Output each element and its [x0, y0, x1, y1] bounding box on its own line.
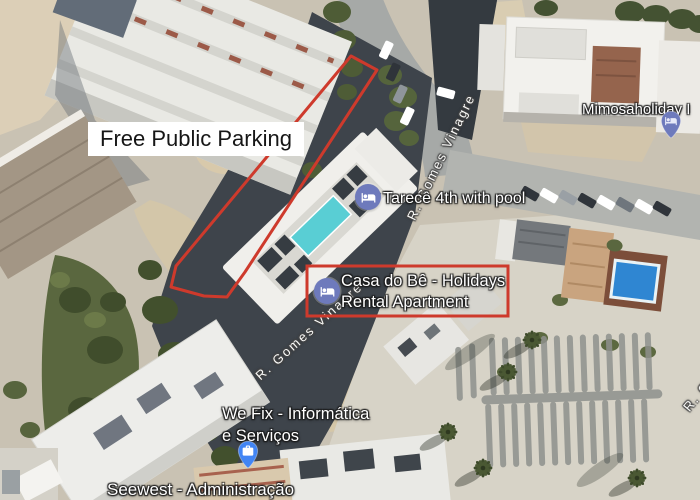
free-parking-annotation: Free Public Parking: [88, 122, 304, 156]
poi-label-tarece[interactable]: Tarecê 4th with pool: [383, 188, 525, 209]
poi-label-line: Casa do Bê - Holidays: [341, 271, 505, 292]
poi-label-line: We Fix - Informática: [222, 403, 369, 425]
poi-label-seewest[interactable]: Seewest - Administração: [107, 479, 294, 500]
satellite-map-screenshot[interactable]: R. Gomes Vinagre R. Gomes Vinagre R. G M…: [0, 0, 700, 500]
villa-pool: [612, 262, 657, 301]
briefcase-pin-icon[interactable]: [237, 440, 259, 475]
poi-label-line: Rental Apartment: [341, 292, 505, 313]
hotel-icon[interactable]: [355, 184, 381, 210]
poi-label-casa-do-be[interactable]: Casa do Bê - Holidays Rental Apartment: [341, 271, 505, 313]
hotel-icon[interactable]: [314, 278, 340, 304]
lodging-pin-icon[interactable]: [660, 110, 682, 145]
corner-structures: [0, 448, 63, 500]
